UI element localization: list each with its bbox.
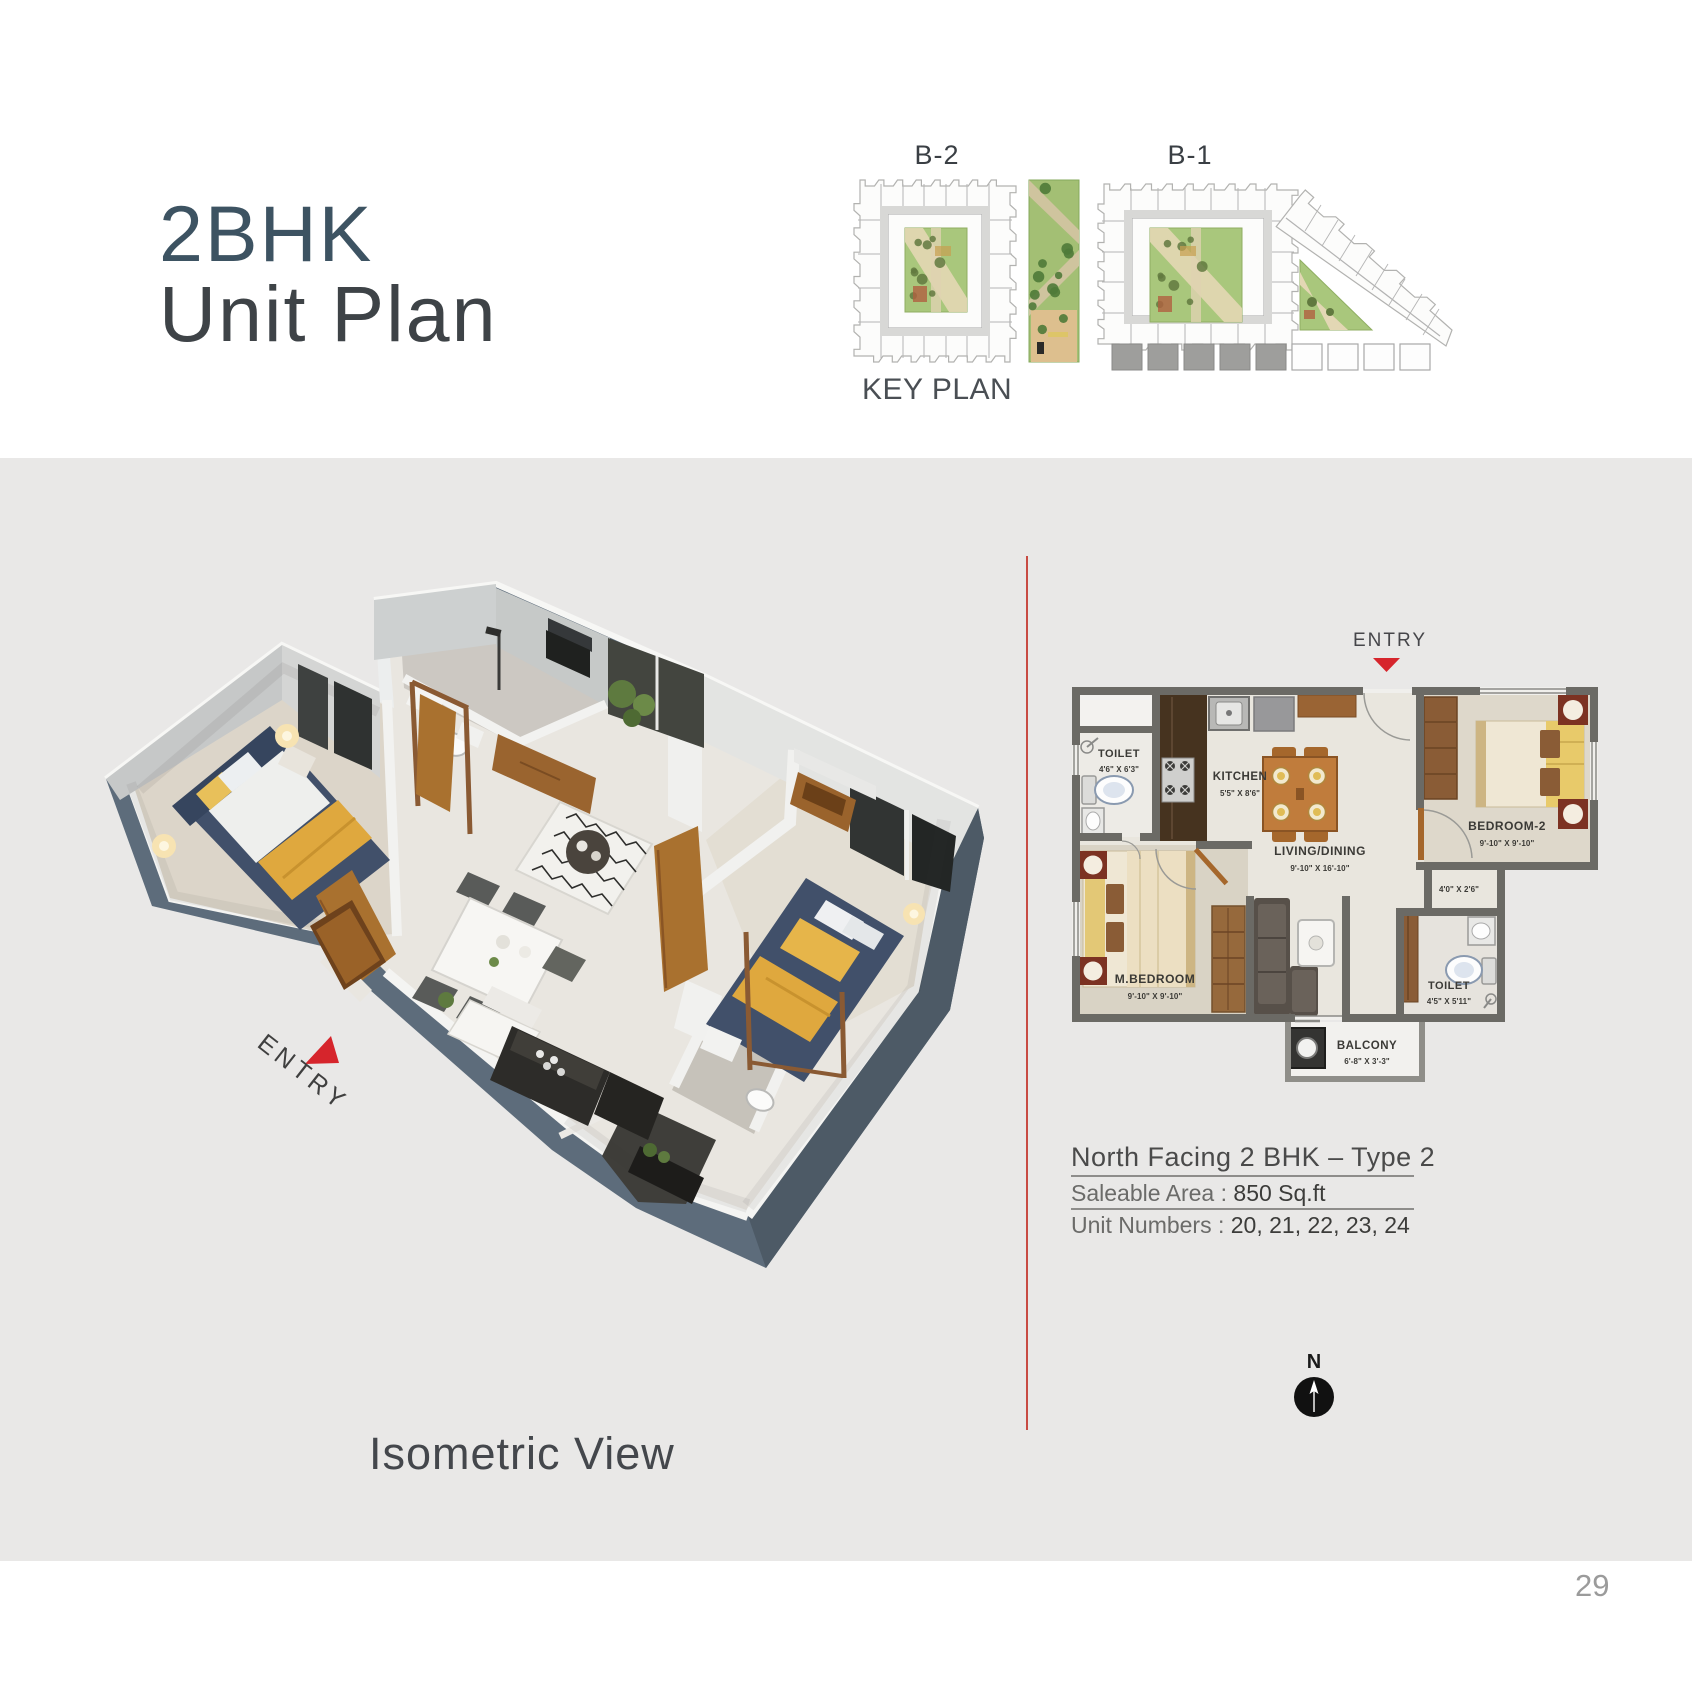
- svg-text:9'-10" X 16'-10": 9'-10" X 16'-10": [1290, 864, 1349, 873]
- svg-text:TOILET: TOILET: [1098, 748, 1140, 760]
- svg-text:BEDROOM-2: BEDROOM-2: [1468, 819, 1546, 833]
- svg-text:ENTRY: ENTRY: [252, 1029, 353, 1117]
- svg-text:KITCHEN: KITCHEN: [1213, 771, 1268, 783]
- svg-text:N: N: [1307, 1351, 1321, 1373]
- svg-text:5'5" X 8'6": 5'5" X 8'6": [1220, 789, 1260, 798]
- svg-text:6'-8" X 3'-3": 6'-8" X 3'-3": [1344, 1057, 1390, 1066]
- svg-text:9'-10" X 9'-10": 9'-10" X 9'-10": [1480, 839, 1535, 848]
- svg-text:LIVING/DINING: LIVING/DINING: [1274, 844, 1366, 858]
- svg-text:BALCONY: BALCONY: [1337, 1040, 1397, 1052]
- svg-text:4'5" X 5'11": 4'5" X 5'11": [1427, 997, 1471, 1006]
- svg-text:4'6" X 6'3": 4'6" X 6'3": [1099, 765, 1139, 774]
- svg-text:TOILET: TOILET: [1428, 980, 1470, 992]
- svg-text:M.BEDROOM: M.BEDROOM: [1115, 972, 1196, 986]
- svg-text:9'-10" X 9'-10": 9'-10" X 9'-10": [1128, 992, 1183, 1001]
- svg-text:4'0" X 2'6": 4'0" X 2'6": [1439, 885, 1479, 894]
